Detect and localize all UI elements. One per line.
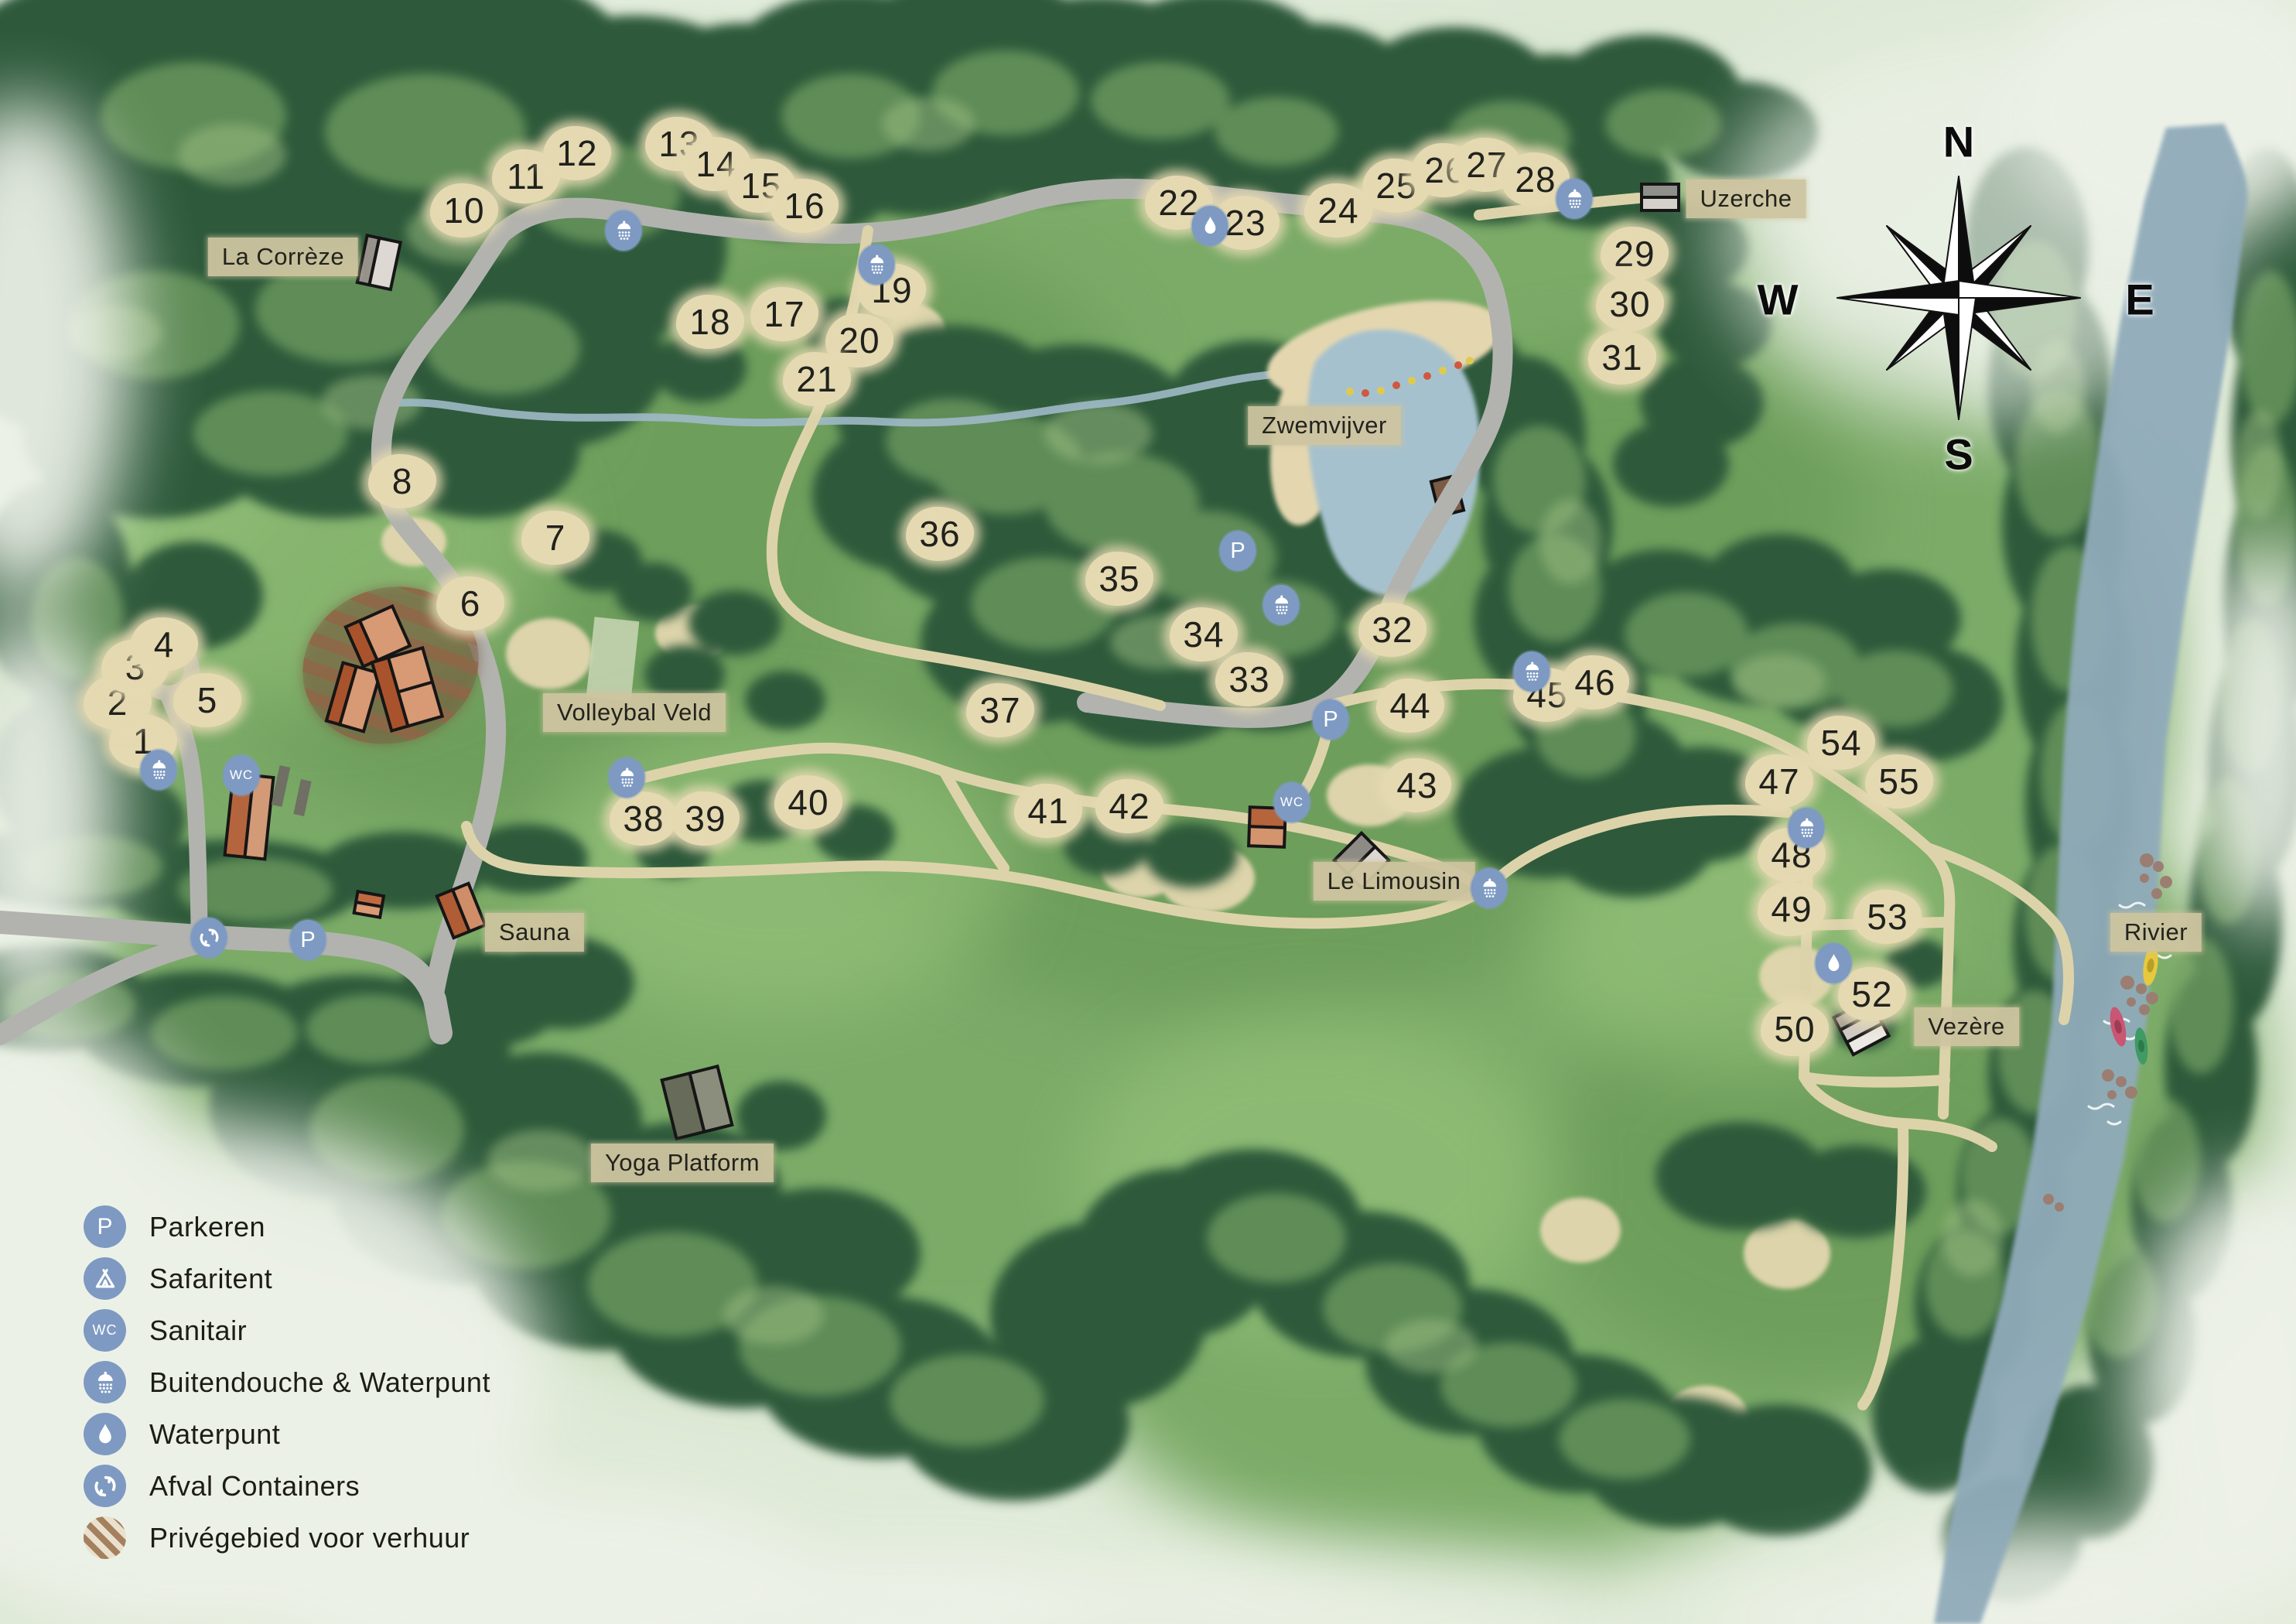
recycle-badge <box>191 918 227 958</box>
shower-icon <box>615 766 638 789</box>
parking-badge: P <box>1313 699 1349 740</box>
legend-item-stripes: Privégebied voor verhuur <box>84 1512 490 1564</box>
shower-badge <box>606 210 642 251</box>
wc-icon: WC <box>1280 795 1303 810</box>
recycle-icon <box>197 926 220 949</box>
campsite-map: 1234567810111213141516171819202122232425… <box>0 0 2296 1624</box>
shower-icon <box>1520 660 1543 683</box>
parking-badge: P <box>290 920 326 960</box>
parking-icon: P <box>1230 538 1245 564</box>
legend-label: Sanitair <box>149 1315 247 1347</box>
shower-icon <box>865 253 888 276</box>
parking-icon: P <box>97 1214 112 1240</box>
parking-badge: P <box>1220 531 1256 571</box>
yoga-platform-building <box>662 1066 733 1139</box>
legend-item-parking: PParkeren <box>84 1201 490 1253</box>
legend-recycle-icon <box>84 1465 126 1507</box>
tent-icon <box>92 1266 118 1292</box>
shower-icon <box>1269 593 1293 617</box>
legend-label: Waterpunt <box>149 1418 280 1451</box>
shower-icon <box>612 219 635 242</box>
drop-badge <box>1192 206 1228 246</box>
shower-badge <box>1471 868 1508 908</box>
compass-letter-s: S <box>1944 429 1973 480</box>
legend: PParkerenSafaritentWCSanitairBuitendouch… <box>84 1201 490 1564</box>
map-label-volleybal-veld: Volleybal Veld <box>543 693 726 732</box>
shower-badge <box>1514 651 1550 692</box>
map-label-sauna: Sauna <box>485 913 584 952</box>
map-label-uzerche: Uzerche <box>1686 179 1806 218</box>
legend-stripes-icon <box>84 1516 126 1559</box>
legend-item-shower: Buitendouche & Waterpunt <box>84 1356 490 1408</box>
shower-icon <box>1478 877 1501 900</box>
legend-item-recycle: Afval Containers <box>84 1460 490 1512</box>
shower-badge <box>141 750 177 790</box>
legend-wc-icon: WC <box>84 1309 126 1352</box>
parking-icon: P <box>300 928 315 953</box>
volleyball-field <box>586 617 640 701</box>
legend-item-wc: WCSanitair <box>84 1304 490 1356</box>
legend-item-tent: Safaritent <box>84 1253 490 1304</box>
shower-badge <box>609 757 645 798</box>
map-label-yoga-platform: Yoga Platform <box>591 1144 774 1182</box>
shower-icon <box>1563 187 1586 210</box>
waterdrop-icon <box>1198 214 1221 238</box>
farm-small-building <box>354 891 384 917</box>
legend-parking-icon: P <box>84 1205 126 1248</box>
recycle-icon <box>92 1473 118 1499</box>
map-label-zwemvijver: Zwemvijver <box>1248 406 1401 445</box>
shower-badge <box>1789 808 1825 848</box>
legend-tent-icon <box>84 1257 126 1300</box>
parking-icon: P <box>1323 707 1338 733</box>
map-label-rivier: Rivier <box>2110 913 2202 952</box>
wc-badge: WC <box>1274 782 1310 822</box>
legend-label: Safaritent <box>149 1263 272 1295</box>
legend-label: Buitendouche & Waterpunt <box>149 1366 490 1399</box>
waterdrop-icon <box>92 1421 118 1448</box>
legend-shower-icon <box>84 1361 126 1403</box>
shower-icon <box>1795 816 1818 839</box>
compass-letter-e: E <box>2125 275 2154 325</box>
legend-label: Privégebied voor verhuur <box>149 1522 470 1554</box>
compass-letter-n: N <box>1943 117 1974 167</box>
shower-icon <box>147 758 170 781</box>
map-label-vezere: Vezère <box>1914 1007 2019 1046</box>
shower-badge <box>859 244 895 285</box>
map-label-le-limousin: Le Limousin <box>1314 862 1475 901</box>
legend-label: Afval Containers <box>149 1470 360 1503</box>
legend-item-drop: Waterpunt <box>84 1408 490 1460</box>
shower-badge <box>1556 179 1593 219</box>
waterdrop-icon <box>1822 952 1845 975</box>
shower-icon <box>92 1369 118 1396</box>
compass-letter-w: W <box>1758 275 1799 325</box>
shower-badge <box>1263 585 1300 625</box>
wc-icon: WC <box>230 768 253 783</box>
wc-badge: WC <box>224 755 260 795</box>
legend-label: Parkeren <box>149 1211 265 1243</box>
uzerche-building <box>1642 184 1679 210</box>
legend-drop-icon <box>84 1413 126 1455</box>
drop-badge <box>1816 943 1852 983</box>
map-label-la-correze: La Corrèze <box>208 238 358 276</box>
wc-icon: WC <box>93 1322 118 1339</box>
